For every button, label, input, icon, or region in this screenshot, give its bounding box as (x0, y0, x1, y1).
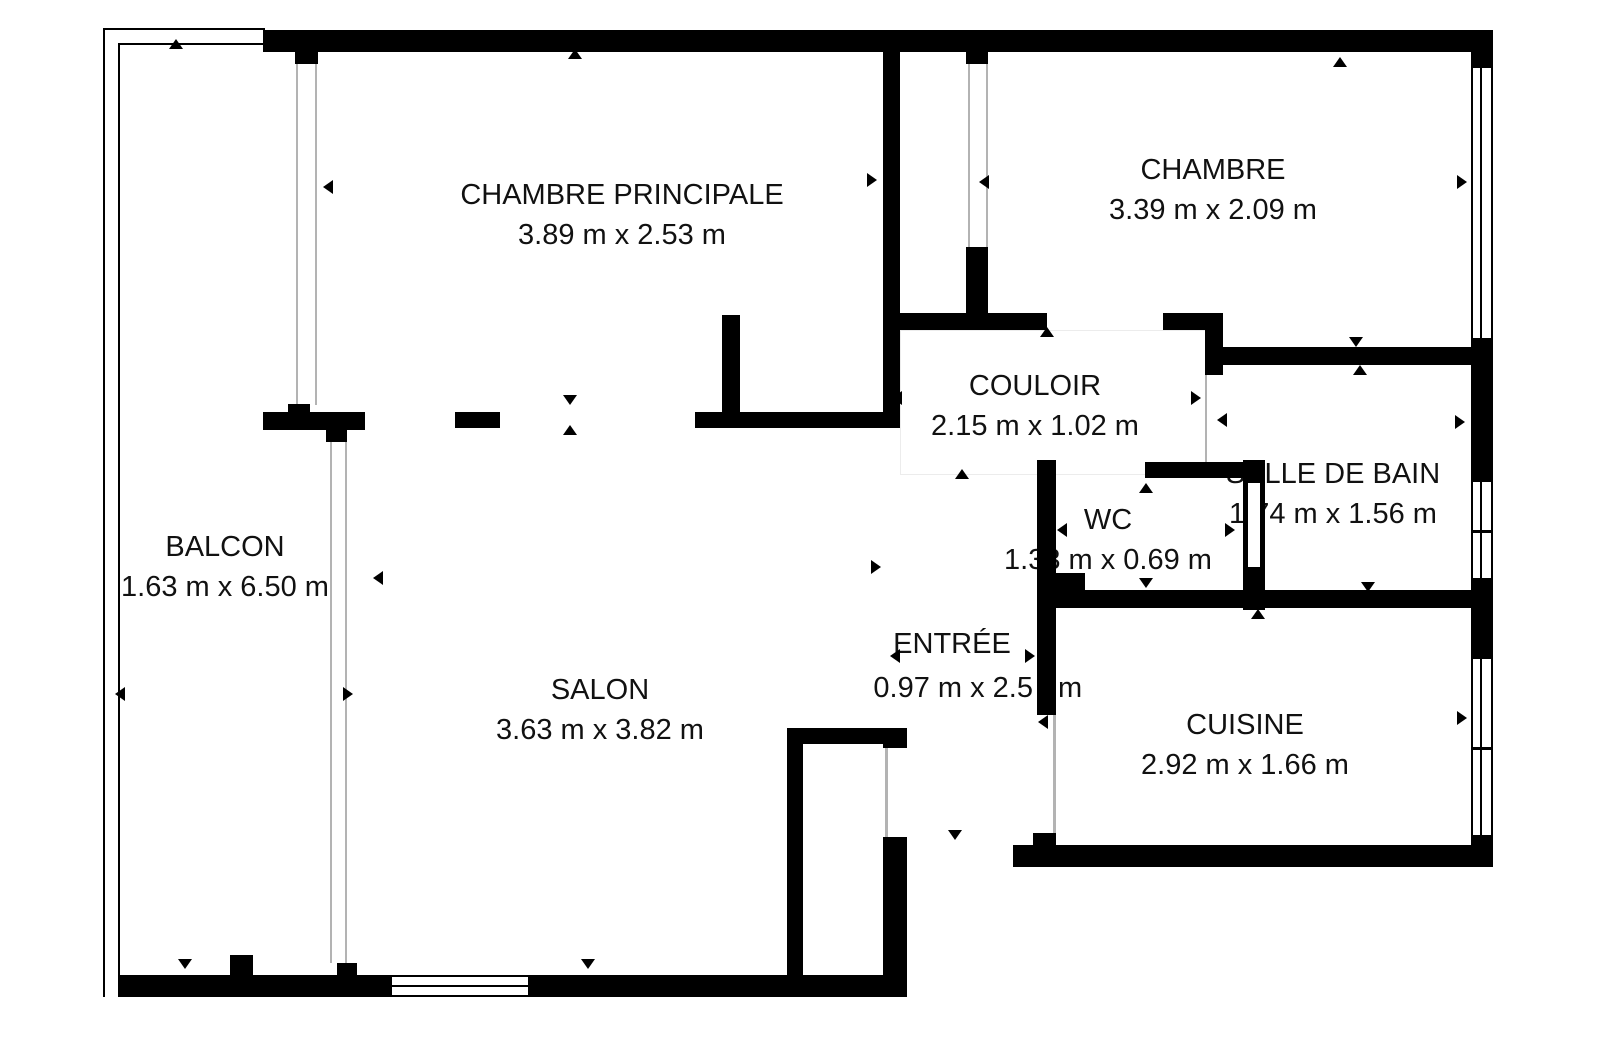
window-line (345, 442, 347, 963)
room-dims: 2.15 m x 1.02 m (931, 406, 1139, 446)
wall-segment (1163, 313, 1223, 330)
balcony-railing-line (103, 28, 105, 997)
wall-segment (883, 52, 900, 428)
door-slot (1247, 482, 1261, 568)
wall-segment (900, 313, 1047, 330)
wall-segment (1037, 590, 1471, 608)
wall-segment (263, 30, 1493, 52)
wall-segment (1037, 460, 1056, 715)
direction-marker (1333, 57, 1347, 67)
wall-segment (326, 430, 347, 442)
room-label-entree: ENTRÉE (893, 624, 1011, 664)
direction-marker (568, 49, 582, 59)
window-glazing-line (1480, 68, 1482, 338)
direction-marker (169, 39, 183, 49)
direction-marker (1353, 365, 1367, 375)
wall-segment (883, 728, 907, 748)
room-label-salon: SALON 3.63 m x 3.82 m (496, 670, 704, 750)
door-opening-line (986, 64, 988, 247)
room-name: SALON (496, 670, 704, 710)
room-name: ENTRÉE (893, 624, 1011, 664)
direction-marker (890, 649, 900, 663)
direction-marker (1251, 609, 1265, 619)
direction-marker (1057, 523, 1067, 537)
room-dims: 1.33 m x 0.69 m (1004, 540, 1212, 580)
direction-marker (1457, 711, 1467, 725)
window-glazing-line (392, 985, 528, 987)
door-opening-line (1205, 373, 1207, 463)
room-dims: 3.89 m x 2.53 m (460, 215, 783, 255)
wall-segment (455, 412, 500, 428)
wall-segment (1013, 845, 1493, 867)
room-dims-entree-right: m (1058, 668, 1082, 708)
room-name: CHAMBRE PRINCIPALE (460, 175, 783, 215)
room-dims: 3.39 m x 2.09 m (1109, 190, 1317, 230)
room-dims: 3.63 m x 3.82 m (496, 710, 704, 750)
direction-marker (563, 425, 577, 435)
direction-marker (323, 180, 333, 194)
room-name: WC (1004, 500, 1212, 540)
direction-marker (343, 687, 353, 701)
wall-segment (337, 963, 357, 975)
window-salle-de-bain (1471, 480, 1493, 580)
direction-marker (1455, 415, 1465, 429)
room-label-chambre-principale: CHAMBRE PRINCIPALE 3.89 m x 2.53 m (460, 175, 783, 255)
wall-segment (883, 837, 907, 997)
wall-segment (530, 975, 907, 997)
room-label-cuisine: CUISINE 2.92 m x 1.66 m (1141, 705, 1349, 785)
wall-segment (1145, 462, 1245, 478)
wall-segment (1205, 330, 1223, 375)
balcony-railing-line (118, 43, 120, 975)
direction-marker (581, 959, 595, 969)
direction-marker (1040, 327, 1054, 337)
window-line (296, 62, 298, 405)
direction-marker (867, 173, 877, 187)
floor-plan: CHAMBRE PRINCIPALE 3.89 m x 2.53 m CHAMB… (0, 0, 1600, 1043)
direction-marker (871, 560, 881, 574)
window-salon (390, 975, 530, 997)
room-name: CHAMBRE (1109, 150, 1317, 190)
direction-marker (955, 469, 969, 479)
window-divider (1473, 747, 1491, 750)
direction-marker (1217, 413, 1227, 427)
direction-marker (1457, 175, 1467, 189)
direction-marker (1025, 649, 1035, 663)
direction-marker (1191, 391, 1201, 405)
room-dims: 2.92 m x 1.66 m (1141, 745, 1349, 785)
wall-segment (1056, 573, 1085, 590)
wall-segment (1037, 833, 1056, 867)
balcony-railing-line (103, 28, 265, 30)
room-dims-entree-left: 0.97 m x 2.5 (873, 668, 1033, 708)
window-chambre (1471, 66, 1493, 340)
door-opening-line (885, 748, 888, 837)
window-line (315, 62, 317, 405)
direction-marker (1139, 578, 1153, 588)
direction-marker (1041, 465, 1055, 475)
window-line (330, 442, 332, 963)
room-name: BALCON (121, 527, 329, 567)
door-opening-line (1053, 715, 1056, 833)
direction-marker (563, 395, 577, 405)
direction-marker (1361, 582, 1375, 592)
direction-marker (979, 175, 989, 189)
room-label-balcon: BALCON 1.63 m x 6.50 m (121, 527, 329, 607)
wall-segment (118, 975, 390, 997)
room-name: CUISINE (1141, 705, 1349, 745)
direction-marker (1038, 715, 1048, 729)
direction-marker (373, 571, 383, 585)
wall-segment (263, 412, 365, 430)
wall-segment (288, 404, 310, 414)
direction-marker (115, 687, 125, 701)
wall-segment (787, 728, 803, 997)
room-label-wc: WC 1.33 m x 0.69 m (1004, 500, 1212, 580)
room-label-couloir: COULOIR 2.15 m x 1.02 m (931, 366, 1139, 446)
room-dims: 1.63 m x 6.50 m (121, 567, 329, 607)
direction-marker (1349, 337, 1363, 347)
door-opening-line (968, 64, 970, 247)
room-name: COULOIR (931, 366, 1139, 406)
wall-segment (722, 315, 740, 415)
direction-marker (892, 391, 902, 405)
wall-segment (1471, 580, 1493, 658)
direction-marker (1139, 483, 1153, 493)
wall-segment (1223, 347, 1471, 365)
wall-segment (230, 955, 253, 975)
window-cuisine (1471, 657, 1493, 837)
direction-marker (178, 959, 192, 969)
wall-segment (1471, 340, 1493, 480)
wall-segment (295, 50, 318, 64)
window-divider (1473, 530, 1491, 533)
direction-marker (1225, 523, 1235, 537)
room-label-chambre: CHAMBRE 3.39 m x 2.09 m (1109, 150, 1317, 230)
wall-segment (966, 52, 988, 64)
direction-marker (948, 830, 962, 840)
